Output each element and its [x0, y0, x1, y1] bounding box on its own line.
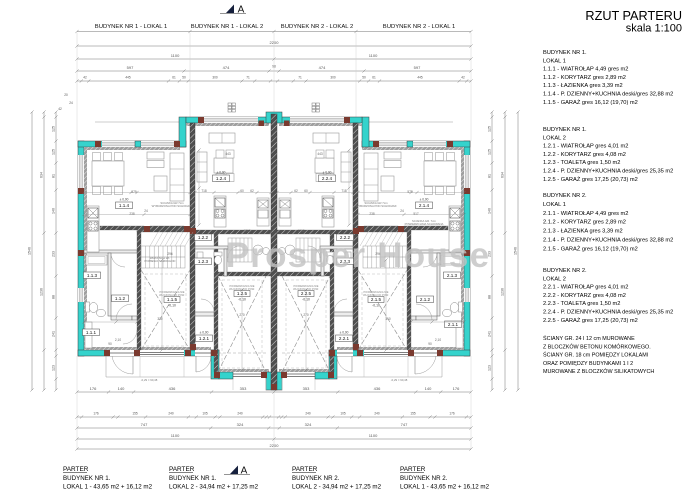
svg-text:1.1.1: 1.1.1	[86, 330, 97, 335]
svg-text:238: 238	[129, 212, 135, 216]
svg-text:436: 436	[169, 386, 176, 391]
svg-text:105: 105	[340, 412, 346, 416]
svg-text:353: 353	[240, 386, 247, 391]
svg-text:176: 176	[93, 412, 99, 416]
svg-text:353: 353	[303, 386, 310, 391]
svg-text:1100: 1100	[369, 433, 378, 438]
svg-text:634: 634	[40, 172, 44, 178]
svg-text:1.1.1 - WIATROŁAP 4,49 gres m2: 1.1.1 - WIATROŁAP 4,49 gres m2	[543, 67, 628, 73]
svg-text:2.2.5: 2.2.5	[301, 291, 312, 296]
svg-text:90: 90	[108, 342, 112, 346]
svg-text:238: 238	[369, 212, 375, 216]
svg-text:1.2.2 - KORYTARZ gres 4,08 m2: 1.2.2 - KORYTARZ gres 4,08 m2	[543, 152, 626, 158]
svg-text:2.2.5 - GARAŻ gres 17,25 (20,7: 2.2.5 - GARAŻ gres 17,25 (20,73) m2	[543, 317, 638, 324]
svg-text:436: 436	[374, 386, 381, 391]
svg-text:123: 123	[488, 365, 492, 371]
svg-text:1.1.5 - GARAŻ gres 16,12 (19,7: 1.1.5 - GARAŻ gres 16,12 (19,70) m2	[543, 99, 638, 106]
svg-text:42: 42	[58, 107, 62, 111]
svg-text:MUROWANE Z BLOCZKÓW SILIKATOWY: MUROWANE Z BLOCZKÓW SILIKATOWYCH	[543, 368, 654, 375]
svg-text:634: 634	[501, 172, 505, 178]
svg-text:1.1.4: 1.1.4	[119, 203, 130, 208]
svg-text:125: 125	[52, 126, 56, 132]
svg-text:1.1.4 - P. DZIENNY+KUCHNIA des: 1.1.4 - P. DZIENNY+KUCHNIA deski/gres 32…	[543, 92, 673, 98]
svg-text:LOKAL 1: LOKAL 1	[543, 58, 566, 64]
svg-text:2200: 2200	[270, 40, 280, 45]
svg-text:1.2.5 - GARAŻ gres 17,25 (20,7: 1.2.5 - GARAŻ gres 17,25 (20,73) m2	[543, 176, 638, 183]
svg-text:LOKAL 1 - 43,65 m2 + 16,12 m2: LOKAL 1 - 43,65 m2 + 16,12 m2	[63, 483, 153, 490]
svg-text:WLICZONA DO POW.: WLICZONA DO POW.	[159, 293, 185, 297]
svg-text:2.1.2 - KORYTARZ gres 2,89 m2: 2.1.2 - KORYTARZ gres 2,89 m2	[543, 220, 626, 226]
svg-text:WLICZONA DO POW.: WLICZONA DO POW.	[363, 293, 389, 297]
svg-text:1.2.4: 1.2.4	[216, 176, 227, 181]
svg-text:PARTER: PARTER	[292, 466, 318, 473]
svg-text:24: 24	[144, 209, 148, 213]
svg-text:88: 88	[52, 295, 56, 299]
svg-text:1.1.3: 1.1.3	[87, 273, 98, 278]
svg-text:240: 240	[374, 412, 380, 416]
svg-text:90: 90	[428, 342, 432, 346]
svg-text:2.1.1: 2.1.1	[448, 322, 459, 327]
svg-text:445: 445	[417, 76, 423, 80]
svg-text:-0,29 = 90,48: -0,29 = 90,48	[391, 378, 408, 382]
svg-text:61: 61	[372, 76, 376, 80]
svg-text:300: 300	[330, 76, 336, 80]
svg-text:2.1.4: 2.1.4	[419, 203, 430, 208]
svg-text:105: 105	[202, 412, 208, 416]
svg-text:240: 240	[168, 412, 174, 416]
svg-text:Z BLOCZKÓW BETONU KOMÓRKOWEGO.: Z BLOCZKÓW BETONU KOMÓRKOWEGO.	[543, 343, 651, 350]
svg-text:BUDYNEK NR 1.: BUDYNEK NR 1.	[63, 475, 111, 482]
svg-text:POMIESCI SAMOCHOD: POMIESCI SAMOCHOD	[145, 259, 176, 263]
svg-text:PARTER: PARTER	[169, 466, 195, 473]
svg-text:LOKAL 2: LOKAL 2	[543, 135, 566, 141]
svg-text:2.1.2: 2.1.2	[420, 297, 431, 302]
svg-text:2,10: 2,10	[115, 338, 121, 342]
svg-text:BUDYNEK NR 1.: BUDYNEK NR 1.	[543, 127, 587, 133]
svg-text:240: 240	[305, 412, 311, 416]
svg-text:± 0,00: ± 0,00	[420, 198, 429, 202]
svg-text:123: 123	[52, 365, 56, 371]
svg-text:1.1.2: 1.1.2	[115, 296, 126, 301]
svg-text:1.1.3 - ŁAZIENKA gres 3,39 m2: 1.1.3 - ŁAZIENKA gres 3,39 m2	[543, 83, 623, 89]
svg-text:241: 241	[52, 331, 56, 337]
svg-text:1.2.5: 1.2.5	[237, 291, 248, 296]
svg-text:20: 20	[64, 93, 68, 97]
svg-text:LOKAL 2: LOKAL 2	[543, 276, 566, 282]
svg-text:± 0,00: ± 0,00	[120, 198, 129, 202]
svg-text:1100: 1100	[171, 53, 180, 58]
svg-text:BUDYNEK NR 2.: BUDYNEK NR 2.	[543, 268, 587, 274]
svg-text:2.2.3 - TOALETA gres 1,50 m2: 2.2.3 - TOALETA gres 1,50 m2	[543, 301, 620, 307]
svg-text:-0,29 = 90,48: -0,29 = 90,48	[141, 378, 158, 382]
svg-text:2.2.1: 2.2.1	[339, 336, 350, 341]
svg-text:1.2.4 - P. DZIENNY+KUCHNIA des: 1.2.4 - P. DZIENNY+KUCHNIA deski/gres 25…	[543, 169, 673, 175]
svg-text:skala 1:100: skala 1:100	[626, 23, 682, 35]
svg-text:50: 50	[182, 76, 186, 80]
svg-text:± 0,00: ± 0,00	[200, 331, 209, 335]
svg-text:42: 42	[461, 76, 465, 80]
svg-text:140: 140	[118, 386, 125, 391]
svg-text:324: 324	[237, 422, 244, 427]
svg-text:42: 42	[83, 76, 87, 80]
svg-text:61: 61	[172, 76, 176, 80]
svg-text:ORAZ POMIĘDZY BUDYNKAMI 1 I 2: ORAZ POMIĘDZY BUDYNKAMI 1 I 2	[543, 361, 633, 367]
svg-text:2.2.2 - KORYTARZ gres 4,08 m2: 2.2.2 - KORYTARZ gres 4,08 m2	[543, 293, 626, 299]
svg-text:1236: 1236	[40, 288, 44, 296]
svg-text:BUDYNEK NR 2 - LOKAL 2: BUDYNEK NR 2 - LOKAL 2	[281, 24, 353, 30]
svg-text:24: 24	[69, 101, 73, 105]
svg-text:597: 597	[127, 65, 134, 70]
svg-text:1262: 1262	[297, 229, 304, 233]
svg-text:2.1.4 - P. DZIENNY+KUCHNIA des: 2.1.4 - P. DZIENNY+KUCHNIA deski/gres 32…	[543, 238, 673, 244]
svg-text:240: 240	[237, 412, 243, 416]
svg-text:2.2.1 - WIATROŁAP gres 4,01 m2: 2.2.1 - WIATROŁAP gres 4,01 m2	[543, 285, 628, 291]
svg-text:140: 140	[52, 208, 56, 214]
svg-text:517: 517	[413, 212, 419, 216]
svg-text:1546: 1546	[514, 247, 518, 255]
svg-text:176: 176	[453, 386, 460, 391]
svg-text:± 0,00: ± 0,00	[323, 171, 332, 175]
svg-text:176: 176	[449, 412, 455, 416]
svg-text:BUDYNEK NR 2.: BUDYNEK NR 2.	[292, 475, 340, 482]
svg-text:2200: 2200	[270, 443, 280, 448]
svg-text:443: 443	[317, 152, 323, 156]
svg-text:1.1.2 - KORYTARZ gres 2,89 m2: 1.1.2 - KORYTARZ gres 2,89 m2	[543, 75, 626, 81]
svg-text:PARTER: PARTER	[400, 466, 426, 473]
svg-text:ŚCIANY GR. 24 I 12 cm MUROWANE: ŚCIANY GR. 24 I 12 cm MUROWANE	[543, 334, 635, 342]
svg-text:PARTER: PARTER	[63, 466, 89, 473]
svg-text:81: 81	[52, 174, 56, 178]
svg-text:474: 474	[223, 65, 230, 70]
svg-text:-0,10: -0,10	[168, 304, 176, 308]
svg-text:BUDYNEK NR 1 - LOKAL 1: BUDYNEK NR 1 - LOKAL 1	[95, 24, 167, 30]
svg-text:2.1.3 - ŁAZIENKA gres 3,39 m2: 2.1.3 - ŁAZIENKA gres 3,39 m2	[543, 229, 623, 235]
svg-text:300: 300	[212, 76, 218, 80]
svg-text:71: 71	[246, 76, 250, 80]
svg-text:BUDYNEK NR 2.: BUDYNEK NR 2.	[400, 475, 448, 482]
svg-text:125: 125	[488, 126, 492, 132]
svg-text:2.1.5: 2.1.5	[371, 297, 382, 302]
svg-text:RZUT PARTERU: RZUT PARTERU	[585, 9, 682, 23]
svg-text:176: 176	[90, 386, 97, 391]
svg-text:241: 241	[488, 331, 492, 337]
svg-text:BUDYNEK NR 1.: BUDYNEK NR 1.	[169, 475, 217, 482]
svg-text:BUDYNEK NR 2.: BUDYNEK NR 2.	[543, 193, 587, 199]
svg-text:324: 324	[305, 422, 312, 427]
svg-text:88: 88	[488, 295, 492, 299]
svg-text:ŚCIANY GR. 18 cm POMIĘDZY LOKA: ŚCIANY GR. 18 cm POMIĘDZY LOKALAMI	[543, 351, 648, 359]
svg-text:443: 443	[225, 152, 231, 156]
svg-text:LOKAL 1: LOKAL 1	[543, 202, 566, 208]
svg-text:50: 50	[362, 76, 366, 80]
svg-text:597: 597	[414, 65, 421, 70]
svg-text:A: A	[238, 5, 245, 16]
svg-text:WYBURZONA POD SCHODAMI: WYBURZONA POD SCHODAMI	[356, 204, 397, 208]
svg-text:2.1.5 - GARAŻ gres 16,12 (19,7: 2.1.5 - GARAŻ gres 16,12 (19,70) m2	[543, 245, 638, 252]
svg-text:LOKAL 2 - 34,94 m2 + 17,25 m2: LOKAL 2 - 34,94 m2 + 17,25 m2	[292, 483, 382, 490]
svg-text:1.2.1 - WIATROŁAP gres 4,01 m2: 1.2.1 - WIATROŁAP gres 4,01 m2	[543, 144, 628, 150]
svg-text:1.2.3 - TOALETA gres 1,50 m2: 1.2.3 - TOALETA gres 1,50 m2	[543, 160, 620, 166]
svg-text:1262: 1262	[243, 229, 250, 233]
svg-text:± 0,00: ± 0,00	[217, 171, 226, 175]
svg-text:1100: 1100	[171, 433, 180, 438]
svg-text:474: 474	[319, 65, 326, 70]
svg-text:BUDYNEK NR 2 - LOKAL 1: BUDYNEK NR 2 - LOKAL 1	[383, 24, 455, 30]
svg-text:233: 233	[52, 251, 56, 257]
svg-text:2.2.4 - P. DZIENNY+KUCHNIA des: 2.2.4 - P. DZIENNY+KUCHNIA deski/gres 25…	[543, 310, 673, 316]
svg-text:140: 140	[488, 208, 492, 214]
svg-text:LOKAL 1 - 43,65 m2 + 16,12 m2: LOKAL 1 - 43,65 m2 + 16,12 m2	[400, 483, 490, 490]
svg-text:155: 155	[410, 412, 416, 416]
svg-text:1.2.1: 1.2.1	[199, 336, 210, 341]
svg-text:71: 71	[298, 76, 302, 80]
svg-text:2,10: 2,10	[435, 338, 441, 342]
svg-text:24: 24	[400, 209, 404, 213]
svg-text:1546: 1546	[28, 247, 32, 255]
svg-text:1.1.5: 1.1.5	[167, 297, 178, 302]
svg-text:1100: 1100	[369, 53, 378, 58]
svg-text:1.2.3: 1.2.3	[198, 259, 209, 264]
svg-text:1236: 1236	[501, 288, 505, 296]
svg-text:140: 140	[425, 386, 432, 391]
svg-text:BUDYNEK NR 1 - LOKAL 2: BUDYNEK NR 1 - LOKAL 2	[191, 24, 263, 30]
svg-text:BUDYNEK NR 1.: BUDYNEK NR 1.	[543, 50, 587, 56]
svg-text:-0,10: -0,10	[372, 304, 380, 308]
svg-text:2.1.1 - WIATROŁAP 4,49 gres m2: 2.1.1 - WIATROŁAP 4,49 gres m2	[543, 211, 628, 217]
svg-text:445: 445	[125, 76, 131, 80]
svg-text:WYBURZONA POD SCHODAMI: WYBURZONA POD SCHODAMI	[152, 204, 193, 208]
svg-text:81: 81	[488, 174, 492, 178]
svg-text:2.2.4: 2.2.4	[322, 176, 333, 181]
svg-text:± 0,00: ± 0,00	[340, 331, 349, 335]
svg-text:Prosper House: Prosper House	[226, 236, 491, 275]
svg-text:LOKAL 2 - 34,94 m2 + 17,25 m2: LOKAL 2 - 34,94 m2 + 17,25 m2	[169, 483, 259, 490]
svg-text:125: 125	[52, 149, 56, 155]
svg-text:155: 155	[132, 412, 138, 416]
svg-text:747: 747	[141, 422, 148, 427]
svg-text:1.2.2: 1.2.2	[198, 235, 209, 240]
svg-text:POWIERZCHNIA SCHOWANA: POWIERZCHNIA SCHOWANA	[405, 222, 444, 226]
svg-text:125: 125	[488, 149, 492, 155]
svg-text:A: A	[241, 466, 248, 477]
svg-text:747: 747	[401, 422, 408, 427]
